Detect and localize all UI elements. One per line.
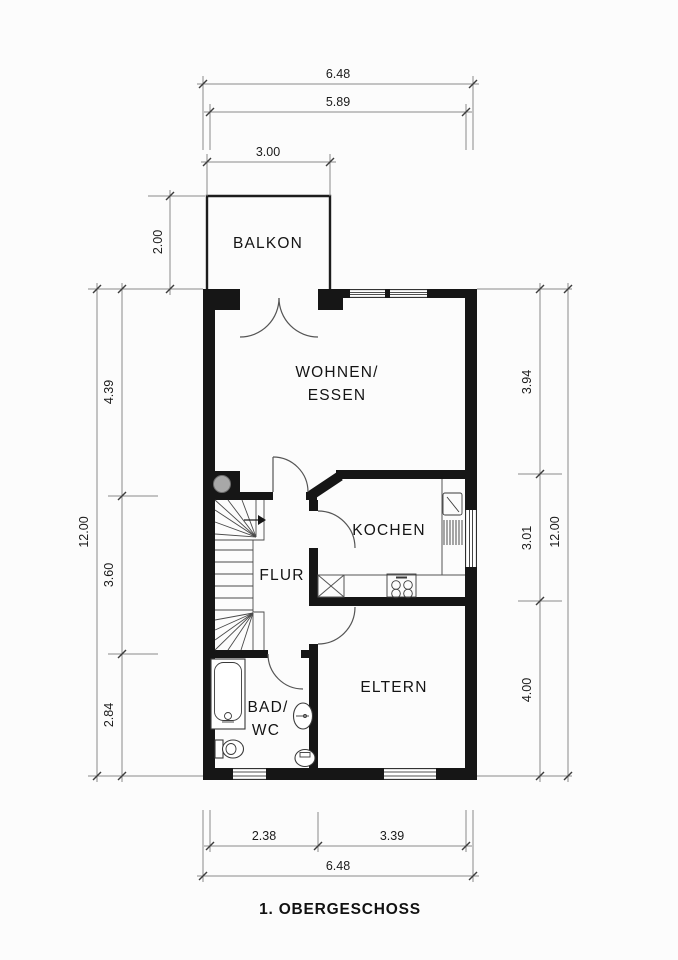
dim-left-wohnen: 4.39 — [102, 380, 116, 404]
room-label-kochen: KOCHEN — [352, 522, 426, 539]
room-label-wohnen-essen-line1: WOHNEN/ — [295, 364, 378, 381]
washbasin-icon — [294, 703, 313, 729]
window-bottom-eltern — [384, 768, 436, 780]
dim-bottom-eltern: 3.39 — [380, 829, 404, 843]
dim-right-kochen: 3.01 — [520, 526, 534, 550]
window-top — [350, 289, 427, 298]
room-label-bad-wc-line2: WC — [252, 722, 280, 739]
window-mullion — [385, 289, 390, 298]
plan-title: 1. OBERGESCHOSS — [259, 901, 421, 918]
dim-bottom-bad: 2.38 — [252, 829, 276, 843]
room-label-wohnen-essen-line2: ESSEN — [308, 387, 367, 404]
wc-icon — [295, 750, 315, 767]
chimney-icon — [214, 476, 231, 493]
dim-right-total: 12.00 — [548, 516, 562, 547]
dim-top-outer: 6.48 — [326, 67, 350, 81]
room-label-balkon: BALKON — [233, 235, 303, 252]
dim-balcony-width: 3.00 — [256, 145, 280, 159]
floor-plan-page: 6.48 5.89 3.00 2.00 4.39 3.60 2.84 12.00… — [0, 0, 678, 960]
kitchen-drainer-icon — [444, 520, 462, 545]
dim-left-total: 12.00 — [77, 516, 91, 547]
room-label-flur: FLUR — [259, 567, 304, 584]
dim-top-inner: 5.89 — [326, 95, 350, 109]
dim-bottom-outer: 6.48 — [326, 859, 350, 873]
toilet-icon — [215, 740, 244, 758]
window-bottom-bad — [233, 768, 266, 780]
room-label-bad-wc-line1: BAD/ — [248, 699, 289, 716]
dim-right-eltern: 4.00 — [520, 678, 534, 702]
dim-balcony-depth: 2.00 — [151, 230, 165, 254]
bathtub-icon — [211, 659, 245, 729]
window-right — [465, 510, 477, 567]
dim-right-wohnen: 3.94 — [520, 370, 534, 394]
room-label-eltern: ELTERN — [360, 679, 427, 696]
dim-left-flur: 3.60 — [102, 563, 116, 587]
floor-plan-drawing: 6.48 5.89 3.00 2.00 4.39 3.60 2.84 12.00… — [0, 0, 678, 960]
dim-left-bad: 2.84 — [102, 703, 116, 727]
